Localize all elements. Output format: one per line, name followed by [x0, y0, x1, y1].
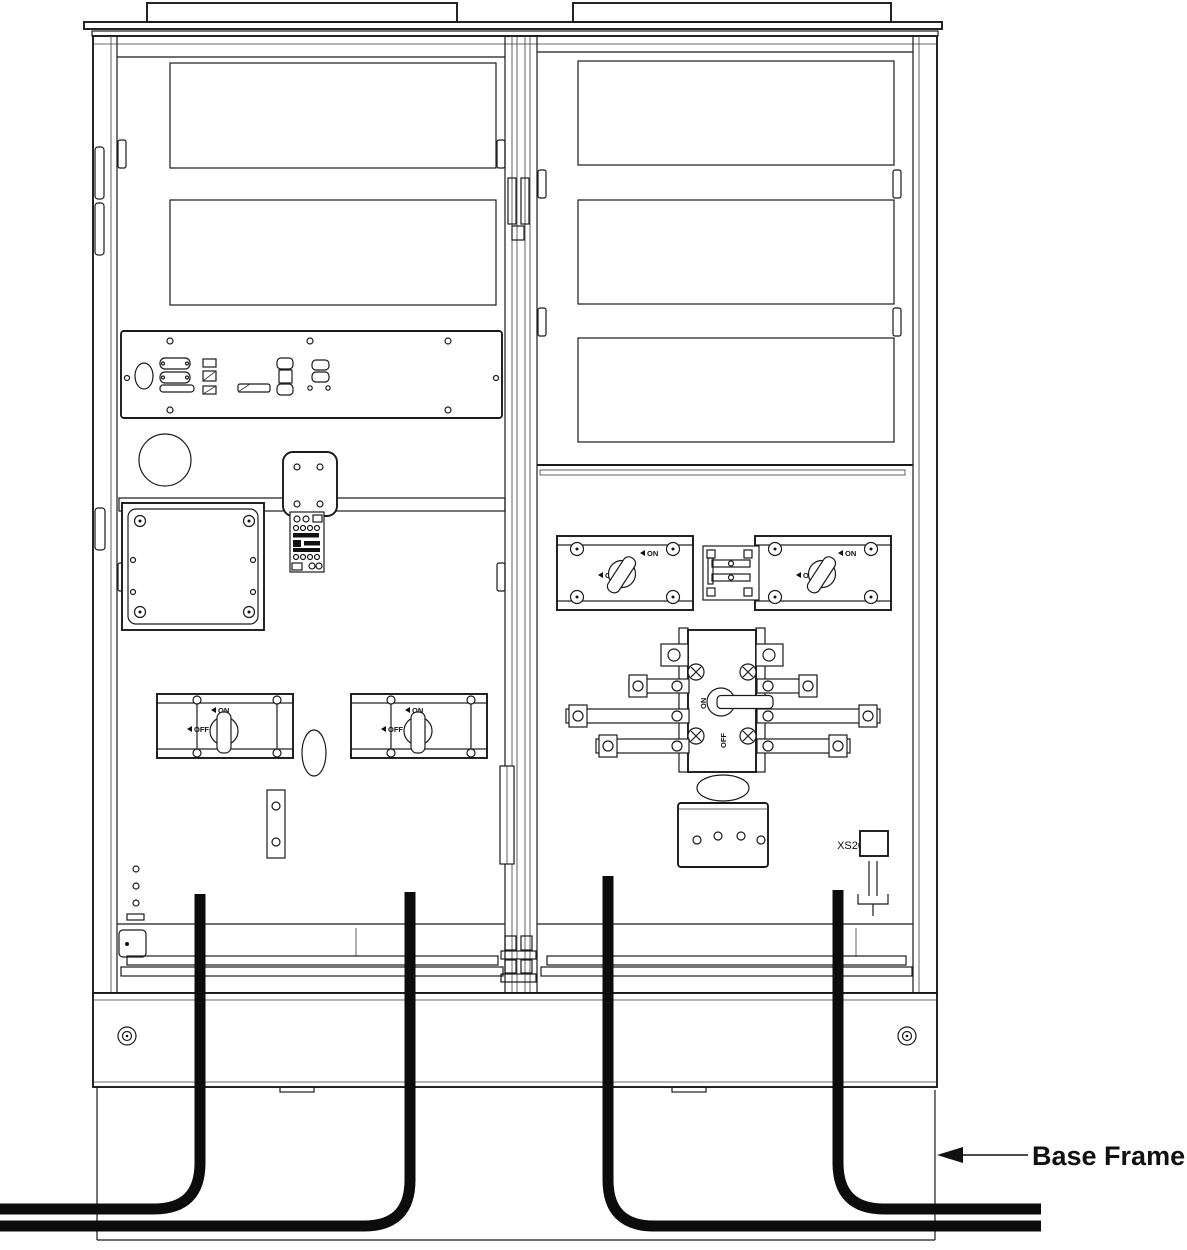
switch1-off-label: OFF: [194, 725, 209, 734]
rotary-switch-left-1: ON OFF: [157, 694, 293, 758]
base-panel: [93, 993, 937, 1087]
left-section: ON OFF ON OFF: [119, 63, 514, 920]
switch3-on-label: ON: [647, 549, 658, 558]
rotary-switch-right-2: ON OFF: [755, 536, 891, 610]
bottom-access-plate: [678, 803, 768, 867]
bypass-handle: [717, 696, 773, 709]
terminal-bracket-panel: [703, 546, 759, 600]
xs20-connector: XS20: [837, 831, 888, 916]
control-panel: [121, 331, 502, 418]
base-frame-callout: Base Frame: [937, 1141, 1185, 1171]
roof-fan-housings: [84, 3, 942, 36]
choke-cover-plate: [122, 503, 264, 630]
divider-bolts: [501, 936, 536, 982]
cutout-oval-left: [302, 730, 326, 776]
switch1-handle: [217, 712, 231, 753]
bypass-off-label: OFF: [719, 733, 728, 748]
fan-panel-right-1: [578, 61, 894, 165]
switch4-on-label: ON: [845, 549, 856, 558]
base-frame: [97, 1087, 935, 1240]
fan-panel-left-bottom: [170, 200, 496, 305]
fan-panel-right-3: [578, 338, 894, 442]
mounting-plate: [283, 452, 337, 516]
callout-arrowhead: [937, 1147, 963, 1163]
fan-panel-left-top: [170, 63, 496, 168]
rotary-switch-right-1: ON OFF: [557, 536, 693, 610]
base-frame-label: Base Frame: [1032, 1141, 1185, 1171]
cutout-oval-right: [697, 775, 749, 801]
right-section: ON OFF ON OFF: [537, 61, 913, 916]
contactor: [290, 512, 324, 572]
switch2-off-label: OFF: [388, 725, 403, 734]
busbar-clamp-ring: [139, 434, 191, 486]
cabinet-diagram: ON OFF ON OFF: [0, 0, 1187, 1250]
fan-panel-right-2: [578, 200, 894, 304]
left-misc: [127, 766, 514, 920]
rotary-switch-left-2: ON OFF: [351, 694, 487, 758]
cabinet-drawing: ON OFF ON OFF: [0, 0, 1187, 1250]
floor-rails: [117, 924, 913, 982]
switch2-handle: [411, 712, 425, 753]
divider-details: [508, 178, 529, 240]
